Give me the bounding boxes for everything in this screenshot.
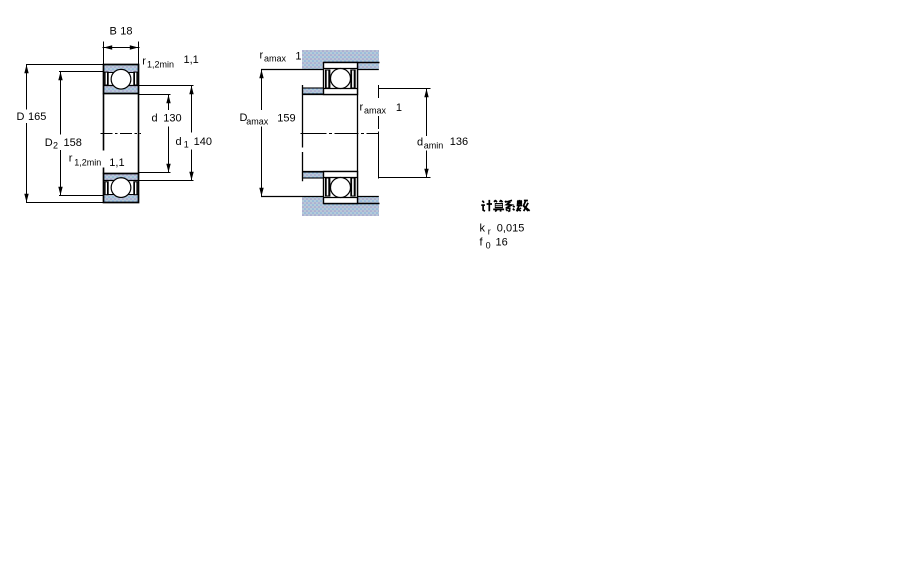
svg-text:1,1: 1,1	[109, 157, 124, 169]
svg-text:1,2min: 1,2min	[147, 59, 174, 69]
svg-text:amax: amax	[246, 116, 269, 126]
svg-text:18: 18	[120, 26, 132, 38]
svg-text:136: 136	[450, 136, 468, 148]
svg-text:1,1: 1,1	[184, 54, 199, 66]
svg-text:140: 140	[194, 136, 212, 148]
svg-text:B: B	[110, 26, 117, 38]
svg-text:d: d	[176, 136, 182, 148]
svg-text:165: 165	[28, 111, 46, 123]
svg-text:1: 1	[295, 51, 301, 63]
svg-text:r: r	[142, 55, 146, 67]
svg-text:k: k	[480, 223, 486, 235]
svg-text:D: D	[45, 137, 53, 149]
svg-text:D: D	[17, 111, 25, 123]
svg-text:16: 16	[496, 237, 508, 249]
svg-text:amin: amin	[424, 141, 444, 151]
svg-text:1: 1	[184, 140, 189, 150]
svg-text:r: r	[260, 50, 264, 62]
svg-text:159: 159	[277, 113, 295, 125]
svg-text:1: 1	[396, 102, 402, 114]
svg-text:0,015: 0,015	[497, 223, 525, 235]
svg-text:130: 130	[163, 113, 181, 125]
svg-text:0: 0	[486, 241, 491, 251]
svg-text:d: d	[417, 136, 423, 148]
svg-text:r: r	[360, 102, 364, 114]
svg-text:r: r	[69, 152, 73, 164]
svg-text:d: d	[152, 113, 158, 125]
svg-text:r: r	[488, 227, 491, 237]
svg-text:amax: amax	[364, 106, 387, 116]
svg-text:2: 2	[53, 141, 58, 151]
svg-text:158: 158	[64, 137, 82, 149]
svg-text:amax: amax	[264, 54, 287, 64]
svg-text:1,2min: 1,2min	[74, 157, 101, 167]
